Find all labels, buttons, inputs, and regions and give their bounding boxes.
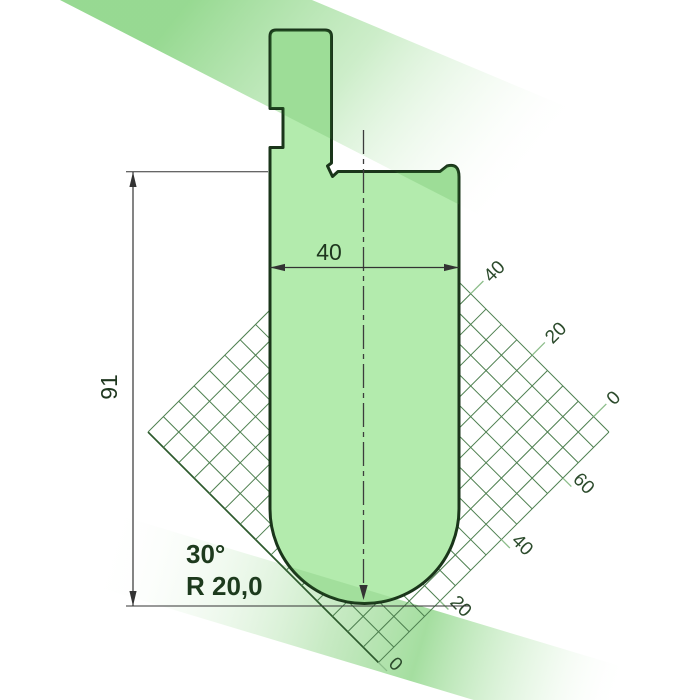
drawing-svg: 402000204060 91 40 30° R 20,0 (0, 0, 700, 700)
technical-drawing-canvas: 402000204060 91 40 30° R 20,0 (0, 0, 700, 700)
height-dimension-value: 91 (96, 374, 122, 400)
grid-axis-label-lower: 60 (569, 469, 599, 499)
tip-radius-label: R 20,0 (186, 571, 263, 601)
grid-axis-label-upper: 0 (603, 387, 625, 409)
height-dim-arrow-down (129, 591, 136, 606)
width-dimension-value: 40 (316, 239, 342, 265)
grid-axis-label-upper: 40 (480, 257, 510, 287)
grid-axis-label-lower: 40 (507, 530, 537, 560)
grid-axis-tick-line (471, 281, 484, 294)
grid-axis-label-upper: 20 (541, 318, 571, 348)
grid-axis-tick-line (594, 404, 607, 417)
grid-axis-tick-line (532, 342, 545, 355)
tip-angle-label: 30° (186, 539, 225, 569)
height-dim-arrow-up (129, 172, 136, 187)
